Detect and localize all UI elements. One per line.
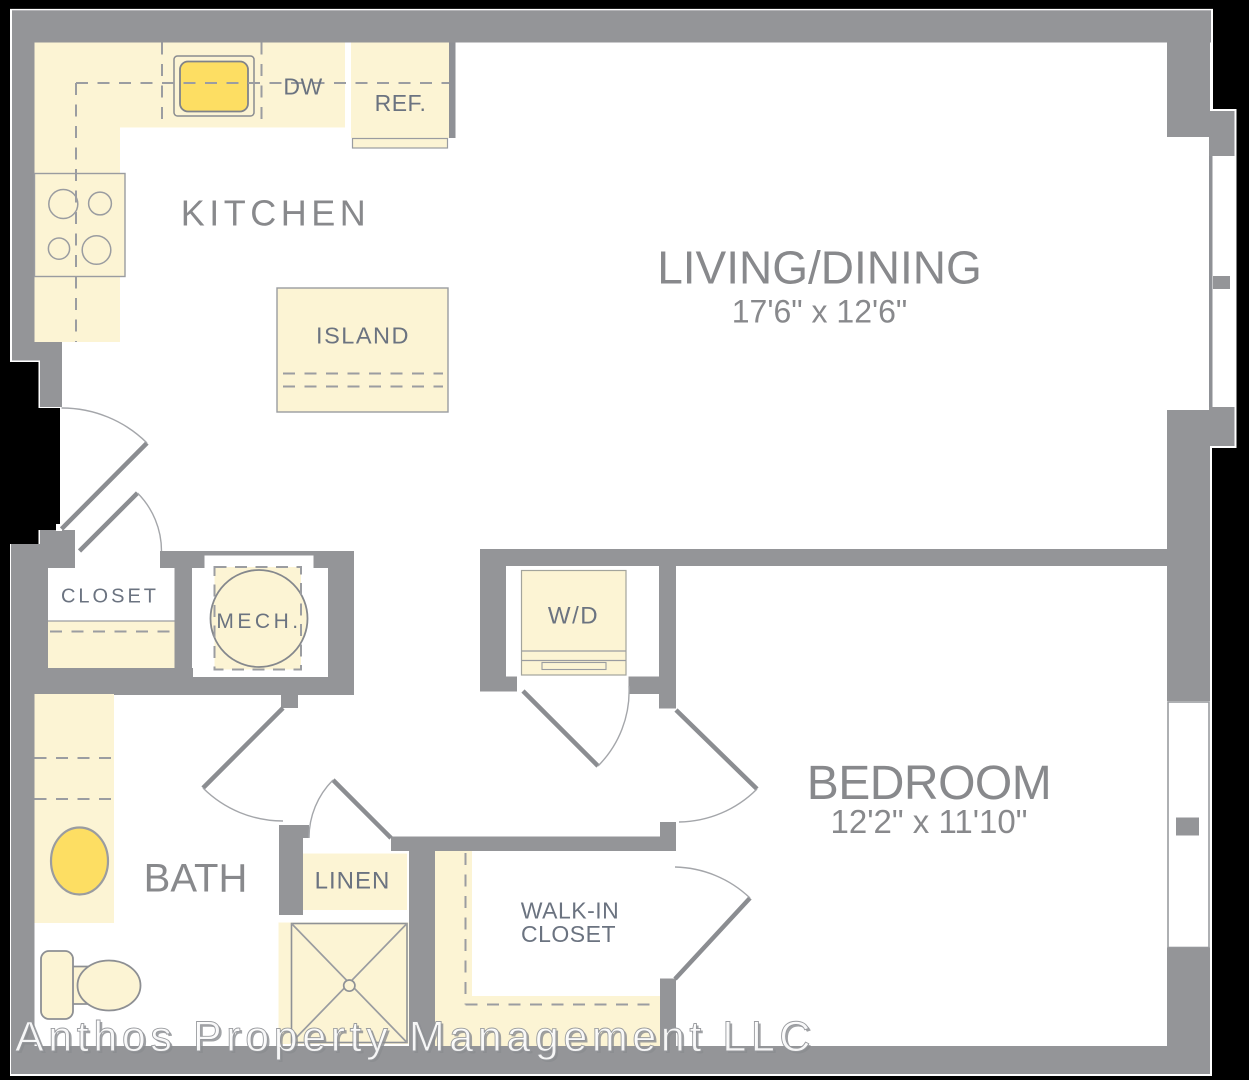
svg-text:DW: DW [283, 74, 322, 100]
svg-text:WALK-IN: WALK-IN [521, 898, 620, 924]
svg-text:CLOSET: CLOSET [521, 921, 616, 947]
svg-text:W/D: W/D [548, 603, 599, 630]
svg-text:KITCHEN: KITCHEN [181, 193, 371, 234]
svg-text:LIVING/DINING: LIVING/DINING [657, 242, 982, 294]
svg-text:CLOSET: CLOSET [61, 586, 159, 608]
svg-text:LINEN: LINEN [315, 868, 391, 895]
svg-text:12'2" x 11'10": 12'2" x 11'10" [831, 803, 1028, 840]
svg-text:Anthos Property Management LLC: Anthos Property Management LLC [15, 1013, 815, 1061]
svg-text:ISLAND: ISLAND [316, 323, 410, 349]
svg-text:17'6" x 12'6": 17'6" x 12'6" [732, 294, 908, 330]
svg-text:REF.: REF. [375, 90, 427, 116]
svg-text:BATH: BATH [144, 857, 248, 901]
svg-text:MECH.: MECH. [216, 610, 301, 633]
